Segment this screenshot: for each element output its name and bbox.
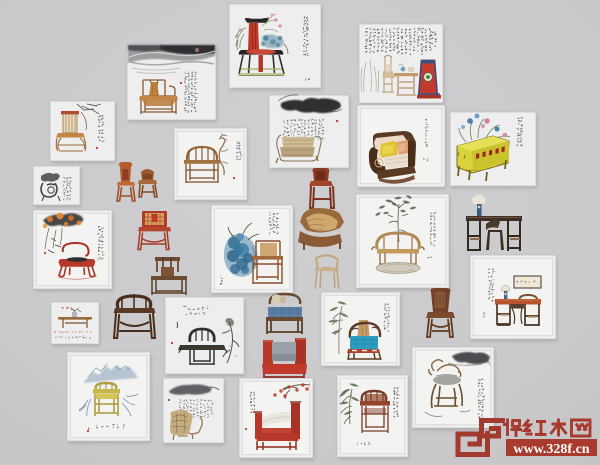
svg-text:www.328f.cn: www.328f.cn: [513, 442, 589, 457]
